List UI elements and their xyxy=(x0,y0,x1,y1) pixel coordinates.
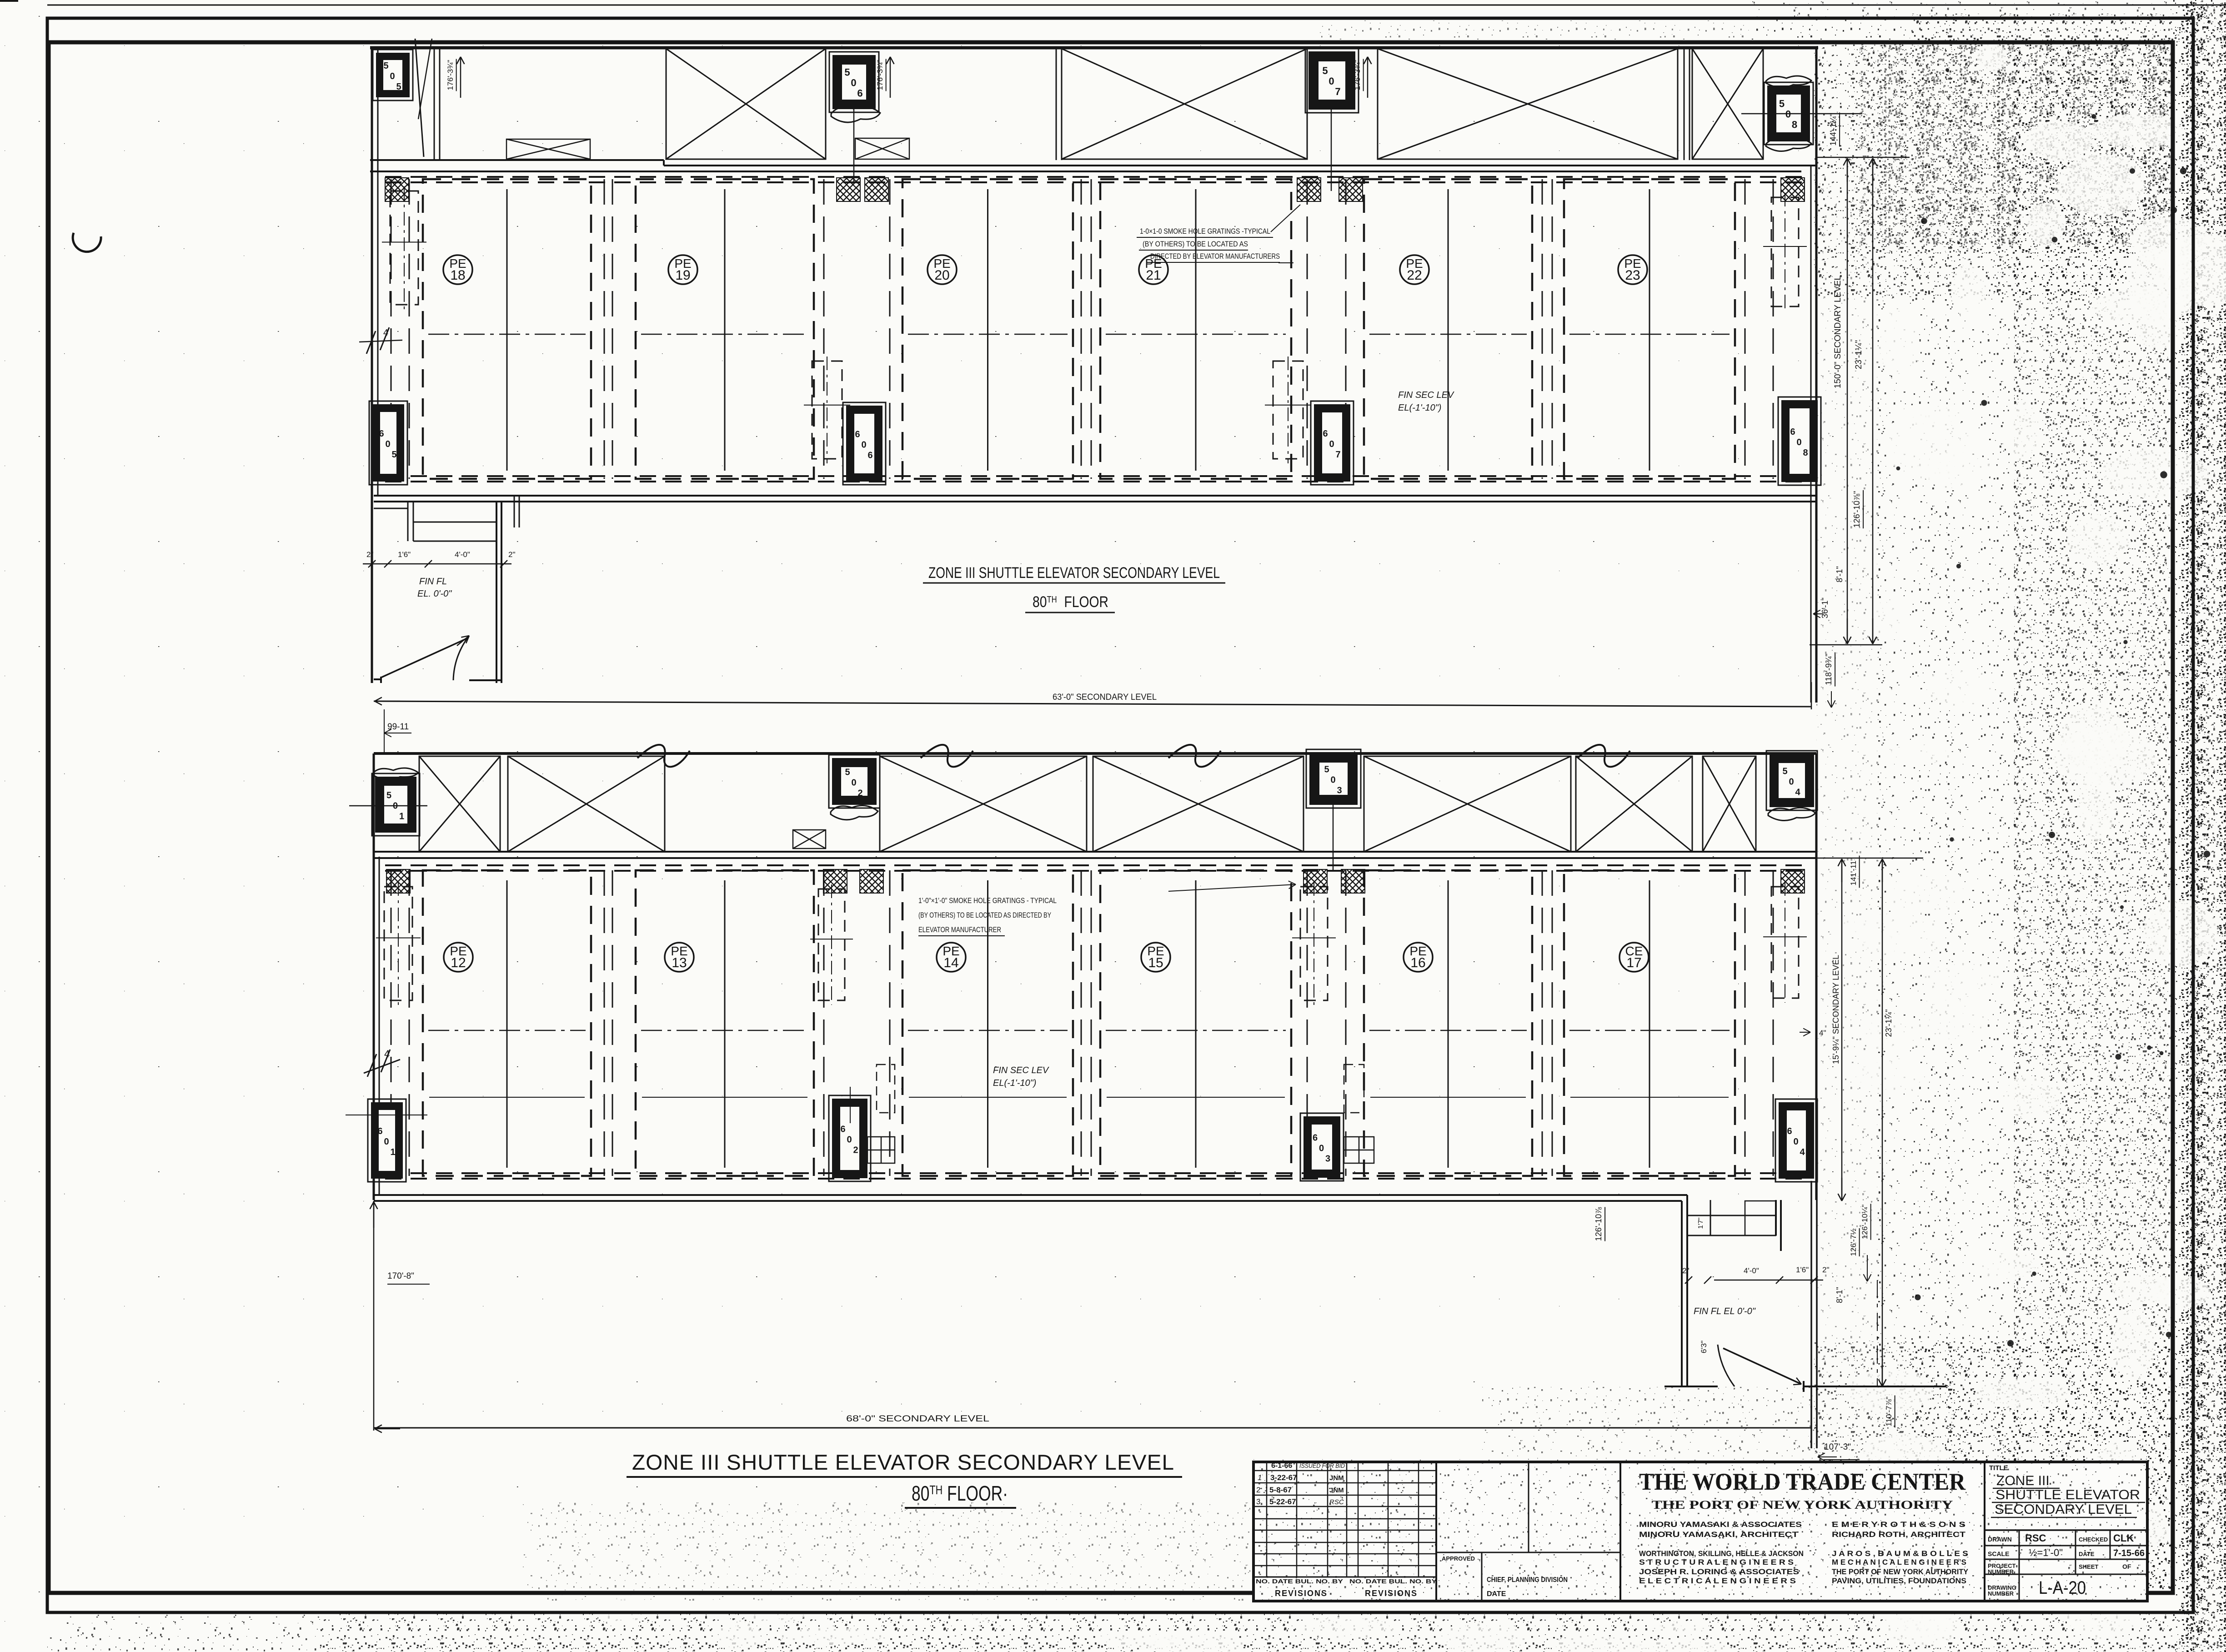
svg-text:19: 19 xyxy=(675,268,690,283)
svg-text:176'-3¾": 176'-3¾" xyxy=(876,60,884,90)
svg-text:NO. DATE BUL. NO. BY: NO. DATE BUL. NO. BY xyxy=(1349,1578,1437,1585)
svg-text:1-0×1-0 SMOKE HOLE GRATINGS -T: 1-0×1-0 SMOKE HOLE GRATINGS -TYPICAL xyxy=(1140,227,1270,236)
svg-text:ISSUED FOR BID: ISSUED FOR BID xyxy=(1299,1462,1345,1469)
svg-text:SHUTTLE ELEVATOR: SHUTTLE ELEVATOR xyxy=(1995,1487,2140,1502)
svg-text:7: 7 xyxy=(1335,450,1340,460)
svg-text:PAVING, UTILITIES, FOUNDATIONS: PAVING, UTILITIES, FOUNDATIONS xyxy=(1832,1577,1966,1585)
svg-text:8: 8 xyxy=(1792,119,1797,131)
svg-text:0: 0 xyxy=(851,778,856,788)
svg-text:0: 0 xyxy=(1329,75,1334,87)
svg-text:J A R O S , B A U M & B O L: J A R O S , B A U M & B O L L E S xyxy=(1832,1549,1968,1558)
svg-text:1: 1 xyxy=(399,812,404,822)
svg-text:2": 2" xyxy=(1822,1265,1830,1274)
svg-text:0: 0 xyxy=(861,440,866,450)
svg-text:FIN FL EL 0'-0": FIN FL EL 0'-0" xyxy=(1694,1306,1756,1316)
svg-text:68'-0" SECONDARY LEVEL: 68'-0" SECONDARY LEVEL xyxy=(846,1414,989,1424)
svg-text:ZONE III SHUTTLE ELEVATOR SECO: ZONE III SHUTTLE ELEVATOR SECONDARY LEVE… xyxy=(928,564,1220,582)
svg-text:4: 4 xyxy=(1800,1147,1805,1157)
svg-text:5: 5 xyxy=(1324,765,1329,775)
svg-text:2: 2 xyxy=(857,788,862,798)
svg-text:5-8-67: 5-8-67 xyxy=(1269,1486,1292,1494)
svg-text:MINORU YAMASAKI & ASSOCIATES: MINORU YAMASAKI & ASSOCIATES xyxy=(1639,1520,1802,1529)
svg-text:SHEET: SHEET xyxy=(2079,1563,2098,1570)
svg-text:6: 6 xyxy=(840,1125,845,1135)
svg-text:7: 7 xyxy=(1335,86,1340,97)
svg-text:22: 22 xyxy=(1407,268,1422,283)
svg-text:DATE: DATE xyxy=(1487,1590,1506,1598)
svg-text:M E C H A N I C A L E N G I: M E C H A N I C A L E N G I N E E R S xyxy=(1832,1558,1966,1567)
svg-text:5: 5 xyxy=(386,791,391,801)
svg-text:1: 1 xyxy=(1258,1473,1262,1482)
svg-text:APPROVED: APPROVED xyxy=(1442,1555,1475,1562)
svg-text:OF: OF xyxy=(2122,1563,2131,1570)
svg-text:110'-7⅞": 110'-7⅞" xyxy=(1885,1396,1893,1426)
svg-text:0: 0 xyxy=(1319,1144,1324,1154)
svg-text:5-22-67: 5-22-67 xyxy=(1269,1497,1296,1506)
svg-text:80TH FLOOR: 80TH FLOOR xyxy=(1033,593,1108,611)
svg-text:FIN SEC LEV: FIN SEC LEV xyxy=(993,1065,1049,1075)
svg-text:17: 17 xyxy=(1626,955,1641,970)
svg-text:0: 0 xyxy=(1329,439,1334,449)
svg-text:(BY OTHERS) TO BE LOCATED AS: (BY OTHERS) TO BE LOCATED AS xyxy=(1143,240,1248,248)
svg-text:TITLE: TITLE xyxy=(1989,1464,2008,1472)
svg-text:EL. 0'-0": EL. 0'-0" xyxy=(417,589,452,599)
svg-text:5: 5 xyxy=(844,67,850,78)
svg-text:0: 0 xyxy=(847,1135,852,1145)
svg-text:DRAWN: DRAWN xyxy=(1988,1536,2012,1543)
svg-text:6'3": 6'3" xyxy=(1700,1341,1708,1353)
svg-text:20: 20 xyxy=(934,268,949,283)
svg-text:2": 2" xyxy=(508,550,516,559)
svg-text:NUMBER: NUMBER xyxy=(1988,1590,2014,1597)
svg-text:5: 5 xyxy=(845,768,850,778)
svg-text:3: 3 xyxy=(1337,786,1342,796)
svg-text:0: 0 xyxy=(1330,775,1335,785)
svg-text:THE PORT OF NEW YORK AUTHORITY: THE PORT OF NEW YORK AUTHORITY xyxy=(1832,1567,1969,1576)
svg-text:5: 5 xyxy=(396,82,401,92)
svg-text:6: 6 xyxy=(1313,1133,1318,1143)
svg-text:L-A-20: L-A-20 xyxy=(2039,1578,2086,1598)
svg-text:E L E C T R I C A L E N G I: E L E C T R I C A L E N G I N E E R S xyxy=(1639,1577,1796,1585)
svg-text:5: 5 xyxy=(391,450,396,460)
svg-text:4: 4 xyxy=(1795,788,1800,798)
svg-text:JOSEPH R. LORING & ASSOCIATES: JOSEPH R. LORING & ASSOCIATES xyxy=(1639,1567,1799,1576)
svg-text:6: 6 xyxy=(857,88,862,99)
svg-text:0: 0 xyxy=(1793,1137,1798,1147)
svg-text:126'-10¼": 126'-10¼" xyxy=(1860,1205,1869,1239)
svg-text:CHIEF, PLANNING DIVISION: CHIEF, PLANNING DIVISION xyxy=(1487,1576,1568,1584)
svg-text:23: 23 xyxy=(1625,268,1640,283)
svg-text:(BY OTHERS) TO BE LOCATED AS D: (BY OTHERS) TO BE LOCATED AS DIRECTED BY xyxy=(918,911,1051,919)
svg-text:141'-11": 141'-11" xyxy=(1849,858,1858,886)
svg-text:2": 2" xyxy=(366,550,374,559)
svg-text:REVISIONS: REVISIONS xyxy=(1275,1589,1328,1598)
svg-text:8'-1": 8'-1" xyxy=(1835,566,1844,582)
svg-text:107'-3": 107'-3" xyxy=(1824,1442,1851,1452)
svg-text:3: 3 xyxy=(1256,1497,1260,1506)
svg-text:6: 6 xyxy=(377,1126,382,1136)
svg-text:E M E R Y R O T H & S O N S: E M E R Y R O T H & S O N S xyxy=(1832,1520,1965,1529)
svg-text:6: 6 xyxy=(855,430,860,440)
svg-text:118'-9¾": 118'-9¾" xyxy=(1824,653,1833,685)
svg-text:RICHARD ROTH, ARCHITECT: RICHARD ROTH, ARCHITECT xyxy=(1832,1530,1966,1539)
svg-text:0: 0 xyxy=(390,71,395,81)
svg-text:CHECKED: CHECKED xyxy=(2079,1536,2108,1543)
svg-text:0: 0 xyxy=(1789,777,1794,787)
svg-text:6: 6 xyxy=(1787,1126,1792,1136)
svg-text:0: 0 xyxy=(385,439,390,449)
svg-text:CLK: CLK xyxy=(2113,1532,2134,1544)
svg-text:RSC: RSC xyxy=(1329,1498,1344,1506)
svg-text:8'-1": 8'-1" xyxy=(1835,1287,1844,1303)
svg-text:12: 12 xyxy=(451,955,466,970)
svg-text:THE PORT OF NEW YORK AUTH: THE PORT OF NEW YORK AUTHORITY xyxy=(1652,1498,1953,1511)
svg-text:80TH FLOOR·: 80TH FLOOR· xyxy=(912,1481,1008,1505)
svg-text:126'-7½: 126'-7½ xyxy=(1849,1229,1858,1256)
svg-text:3: 3 xyxy=(1325,1154,1330,1164)
svg-text:JNM: JNM xyxy=(1329,1486,1344,1494)
svg-text:150'-0" SECONDARY LEVEL: 150'-0" SECONDARY LEVEL xyxy=(1833,276,1843,388)
svg-text:176'-3¾": 176'-3¾" xyxy=(446,60,455,90)
svg-text:0: 0 xyxy=(384,1137,389,1147)
svg-text:RSC: RSC xyxy=(2025,1532,2046,1544)
svg-text:5: 5 xyxy=(1322,65,1328,76)
svg-text:16: 16 xyxy=(1410,955,1425,970)
svg-text:6: 6 xyxy=(379,429,384,439)
svg-text:8: 8 xyxy=(1803,448,1808,458)
svg-text:15'-9¼" SECONDARY LEVEL: 15'-9¼" SECONDARY LEVEL xyxy=(1831,955,1840,1064)
svg-text:3-22-67: 3-22-67 xyxy=(1270,1473,1297,1482)
svg-text:176'-3¾": 176'-3¾" xyxy=(1353,60,1362,90)
svg-text:S T R U C T U R A L E N G I: S T R U C T U R A L E N G I N E E R S xyxy=(1639,1558,1794,1567)
svg-text:JNM: JNM xyxy=(1329,1474,1344,1482)
svg-text:4'-0": 4'-0" xyxy=(455,550,470,559)
svg-text:13: 13 xyxy=(672,955,687,970)
svg-text:SECONDARY LEVEL: SECONDARY LEVEL xyxy=(1995,1502,2132,1517)
svg-text:1'7": 1'7" xyxy=(1697,1218,1705,1229)
svg-text:0: 0 xyxy=(851,77,856,89)
svg-text:6: 6 xyxy=(1323,429,1328,439)
svg-text:1'6": 1'6" xyxy=(398,550,411,559)
svg-text:1'6": 1'6" xyxy=(1796,1265,1809,1274)
svg-text:4: 4 xyxy=(384,1048,390,1059)
svg-text:2: 2 xyxy=(853,1145,858,1155)
svg-text:DIRECTED BY ELEVATOR MANUFACTU: DIRECTED BY ELEVATOR MANUFACTURERS xyxy=(1150,252,1280,261)
svg-text:½=1'-0": ½=1'-0" xyxy=(2029,1547,2063,1558)
svg-text:SCALE: SCALE xyxy=(1988,1550,2009,1557)
svg-text:126'-10⅞": 126'-10⅞" xyxy=(1852,491,1861,528)
svg-text:170'-8": 170'-8" xyxy=(387,1271,414,1281)
svg-text:FIN SEC LEV: FIN SEC LEV xyxy=(1398,390,1454,400)
svg-text:126'-10⅞: 126'-10⅞ xyxy=(1594,1207,1603,1241)
svg-text:DATE: DATE xyxy=(2079,1551,2095,1557)
svg-text:ZONE III: ZONE III xyxy=(1996,1473,2050,1488)
svg-text:14: 14 xyxy=(943,955,958,970)
svg-text:23'-1¼": 23'-1¼" xyxy=(1884,1009,1893,1037)
svg-text:EL(-1'-10"): EL(-1'-10") xyxy=(1398,403,1441,413)
svg-text:18: 18 xyxy=(450,268,465,283)
svg-text:63'-0" SECONDARY LEVEL: 63'-0" SECONDARY LEVEL xyxy=(1053,693,1157,702)
svg-text:REVISIONS: REVISIONS xyxy=(1365,1589,1418,1598)
svg-text:1: 1 xyxy=(390,1147,395,1157)
svg-text:99-11: 99-11 xyxy=(387,722,409,732)
svg-text:6: 6 xyxy=(1790,427,1795,437)
svg-text:2": 2" xyxy=(1682,1266,1690,1275)
svg-text:6-1-66: 6-1-66 xyxy=(1271,1462,1292,1470)
svg-text:5: 5 xyxy=(1782,767,1787,777)
svg-text:15: 15 xyxy=(1148,955,1163,970)
svg-text:ZONE III SHUTTLE ELEVATOR SECO: ZONE III SHUTTLE ELEVATOR SECONDARY LEVE… xyxy=(632,1450,1174,1474)
svg-text:0: 0 xyxy=(1796,437,1801,447)
svg-text:EL(-1'-10"): EL(-1'-10") xyxy=(993,1078,1036,1088)
svg-text:7-15-66: 7-15-66 xyxy=(2113,1548,2145,1558)
svg-text:36'-1": 36'-1" xyxy=(1820,598,1830,618)
svg-text:23'-1¼": 23'-1¼" xyxy=(1854,340,1864,369)
svg-text:WORTHINGTON, SKILLING, HELLE &: WORTHINGTON, SKILLING, HELLE & JACKSON xyxy=(1639,1549,1804,1558)
svg-text:ELEVATOR MANUFACTURER: ELEVATOR MANUFACTURER xyxy=(918,925,1001,934)
svg-text:5: 5 xyxy=(383,61,388,71)
svg-text:21: 21 xyxy=(1146,268,1161,283)
svg-text:2: 2 xyxy=(1256,1486,1260,1494)
svg-text:FIN FL: FIN FL xyxy=(419,577,447,587)
svg-text:6: 6 xyxy=(867,451,872,461)
svg-text:144'-1¼": 144'-1¼" xyxy=(1829,114,1838,146)
svg-text:4": 4" xyxy=(1819,1029,1826,1037)
svg-text:5: 5 xyxy=(1779,98,1785,110)
svg-text:THE WORLD TRADE CENTER: THE WORLD TRADE CENTER xyxy=(1639,1469,1966,1495)
svg-text:NO. DATE BUL. NO. BY: NO. DATE BUL. NO. BY xyxy=(1256,1578,1343,1585)
svg-text:4'-0": 4'-0" xyxy=(1744,1266,1759,1275)
svg-text:MINORU YAMASAKI, ARCHITECT: MINORU YAMASAKI, ARCHITECT xyxy=(1639,1530,1799,1539)
svg-text:1'-0"×1'-0" SMOKE HOLE GRATING: 1'-0"×1'-0" SMOKE HOLE GRATINGS - TYPICA… xyxy=(918,896,1057,905)
svg-text:NUMBER: NUMBER xyxy=(1988,1568,2014,1575)
svg-text:4: 4 xyxy=(383,328,388,338)
